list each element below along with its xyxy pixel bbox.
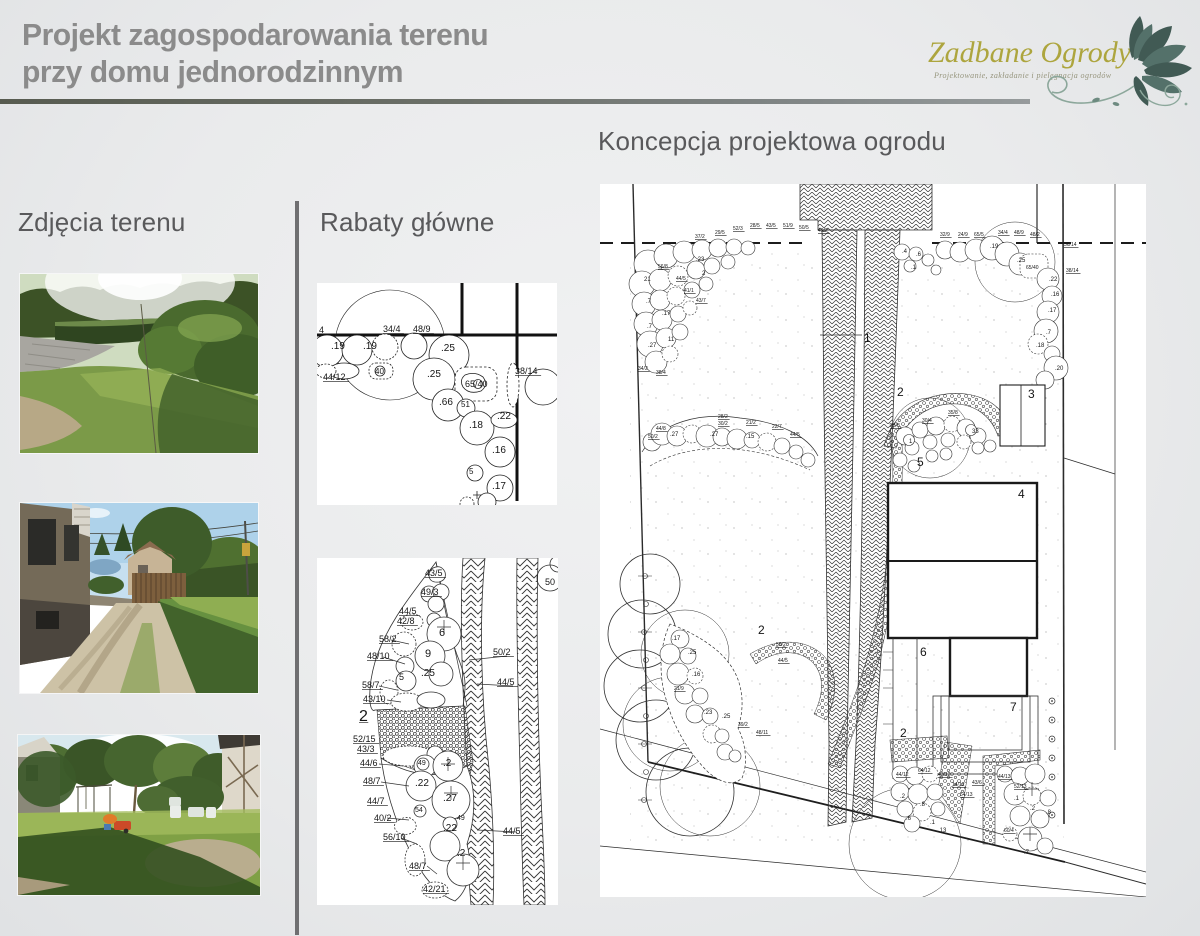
svg-text:.25: .25 [722, 714, 731, 720]
svg-text:.17: .17 [1048, 308, 1057, 314]
svg-text:35/8: 35/8 [948, 410, 958, 416]
svg-text:11: 11 [668, 337, 675, 343]
svg-text:.66: .66 [439, 397, 453, 408]
svg-text:.2: .2 [1030, 806, 1036, 812]
svg-text:.17: .17 [672, 636, 681, 642]
svg-text:60/4: 60/4 [1004, 828, 1014, 834]
svg-text:30/4: 30/4 [922, 418, 932, 424]
company-logo: Zadbane Ogrody Projektowanie, zakładanie… [920, 12, 1196, 114]
svg-text:48/9: 48/9 [413, 324, 431, 334]
svg-text:9: 9 [425, 648, 431, 660]
company-logo-graphic: Zadbane Ogrody Projektowanie, zakładanie… [920, 12, 1196, 114]
svg-text:.22: .22 [1049, 277, 1058, 283]
svg-text:.18: .18 [469, 420, 483, 431]
svg-text:43/10: 43/10 [363, 694, 386, 704]
svg-text:.25: .25 [1017, 258, 1026, 264]
svg-text:44/5: 44/5 [503, 826, 521, 836]
svg-text:32/9: 32/9 [940, 232, 950, 238]
svg-text:65/5: 65/5 [974, 232, 984, 238]
svg-text:.16: .16 [692, 672, 701, 678]
svg-text:49: 49 [418, 760, 426, 767]
svg-text:1: 1 [864, 331, 871, 345]
bed-drawing-2-plan: 43/549/344/542/8658/2948/1050/2.25544/55… [317, 558, 558, 905]
svg-text:52/15: 52/15 [353, 734, 376, 744]
svg-text:.1: .1 [911, 265, 917, 271]
section-heading-photos: Zdjęcia terenu [18, 207, 186, 238]
svg-text:6: 6 [920, 645, 927, 659]
page-title-line1: Projekt zagospodarowania terenu [22, 16, 720, 53]
svg-text:43/6: 43/6 [972, 780, 982, 786]
svg-text:6: 6 [439, 627, 445, 639]
svg-text:58/2: 58/2 [379, 634, 397, 644]
svg-text:38/4: 38/4 [656, 370, 666, 376]
svg-text:38/14: 38/14 [515, 366, 538, 376]
svg-text:.19: .19 [990, 244, 999, 250]
svg-text:.13: .13 [938, 828, 947, 834]
svg-text:2: 2 [897, 385, 904, 399]
svg-text:34/4: 34/4 [998, 230, 1008, 236]
svg-text:44/12: 44/12 [896, 772, 909, 778]
svg-text:56/10: 56/10 [383, 832, 406, 842]
svg-text:44/7: 44/7 [367, 796, 385, 806]
logo-tagline: Projektowanie, zakładanie i pielęgnacja … [933, 71, 1112, 80]
svg-text:37/2: 37/2 [695, 234, 705, 240]
site-photo-1-image [20, 274, 258, 453]
svg-text:56/8: 56/8 [658, 264, 668, 270]
svg-text:.23: .23 [704, 710, 713, 716]
svg-text:5: 5 [917, 455, 924, 469]
svg-text:4: 4 [1018, 487, 1025, 501]
svg-text:65/40: 65/40 [465, 379, 488, 389]
svg-text:48/9: 48/9 [1014, 230, 1024, 236]
svg-text:.20: .20 [1055, 366, 1064, 372]
svg-text:49/2: 49/2 [818, 228, 828, 234]
svg-text:.27: .27 [443, 793, 457, 804]
site-photo-3 [18, 735, 260, 895]
svg-text:5: 5 [469, 467, 474, 476]
svg-text:.17: .17 [492, 481, 506, 492]
svg-text:.1: .1 [1014, 796, 1020, 802]
svg-text:.7: .7 [647, 324, 653, 330]
svg-text:7: 7 [1010, 700, 1017, 714]
svg-text:34/4: 34/4 [383, 324, 401, 334]
svg-text:50: 50 [545, 577, 555, 587]
svg-text:.8: .8 [1046, 810, 1052, 816]
site-photo-2 [20, 503, 258, 693]
svg-text:42/21: 42/21 [423, 884, 446, 894]
svg-text:.25: .25 [688, 650, 697, 656]
svg-text:43/7: 43/7 [696, 298, 706, 304]
svg-text:65/40: 65/40 [1026, 265, 1039, 271]
svg-text:44/6: 44/6 [360, 758, 378, 768]
site-photo-1 [20, 274, 258, 453]
svg-text:.19: .19 [363, 341, 377, 352]
svg-text:.27: .27 [648, 343, 657, 349]
svg-text:54: 54 [415, 807, 423, 814]
svg-text:21/2: 21/2 [746, 420, 756, 426]
svg-text:4: 4 [319, 325, 324, 335]
svg-text:44/13: 44/13 [998, 774, 1011, 780]
svg-text:54/13: 54/13 [960, 792, 973, 798]
svg-text:.2: .2 [457, 848, 466, 859]
svg-text:42/8: 42/8 [397, 616, 415, 626]
svg-text:40/2: 40/2 [374, 813, 392, 823]
svg-text:64/12: 64/12 [918, 768, 931, 774]
svg-text:51/9: 51/9 [783, 223, 793, 229]
svg-text:28/5: 28/5 [750, 223, 760, 229]
svg-text:.16: .16 [1051, 292, 1060, 298]
svg-text:.25: .25 [441, 343, 455, 354]
svg-text:.2: .2 [443, 758, 452, 769]
svg-text:2: 2 [758, 623, 765, 637]
svg-text:.25: .25 [421, 668, 435, 679]
svg-text:.16: .16 [492, 445, 506, 456]
svg-text:44/8: 44/8 [656, 426, 666, 432]
svg-text:58/7: 58/7 [362, 680, 380, 690]
svg-text:52/3: 52/3 [733, 226, 743, 232]
svg-text:39/2: 39/2 [738, 722, 748, 728]
svg-text:.6: .6 [906, 816, 912, 822]
svg-text:48/11: 48/11 [756, 730, 768, 736]
svg-text:43/12: 43/12 [938, 772, 951, 778]
section-heading-plan: Koncepcja projektowa ogrodu [598, 126, 946, 157]
svg-text:30/2: 30/2 [718, 421, 728, 427]
bed-drawing-1-plan: 4.19.1934/448/9.2544/1240.2565/4038/14.6… [317, 283, 557, 505]
svg-text:.4: .4 [902, 249, 908, 255]
svg-text:14/12: 14/12 [952, 782, 965, 788]
svg-text:.27: .27 [670, 432, 679, 438]
presentation-slide: Projekt zagospodarowania terenu przy dom… [0, 0, 1200, 936]
svg-text:5: 5 [399, 672, 404, 682]
svg-text:.18: .18 [1036, 343, 1045, 349]
svg-text:.23: .23 [696, 257, 705, 263]
svg-text:34/2: 34/2 [638, 366, 648, 372]
svg-text:38/14: 38/14 [1066, 268, 1079, 274]
page-title: Projekt zagospodarowania terenu przy dom… [22, 16, 720, 90]
section-heading-beds: Rabaty główne [320, 207, 495, 238]
garden-concept-plan-drawing: 12345672237/229/552/328/543/551/950/549/… [600, 184, 1146, 897]
svg-text:49: 49 [457, 815, 465, 822]
site-photo-3-image [18, 735, 260, 895]
svg-text:.8: .8 [920, 802, 926, 808]
svg-text:.17: .17 [662, 311, 671, 317]
svg-text:40: 40 [375, 367, 384, 376]
svg-text:41/1: 41/1 [684, 288, 694, 294]
svg-text:29/5: 29/5 [715, 230, 725, 236]
logo-wordmark: Zadbane Ogrody [928, 36, 1132, 69]
svg-text:49/3: 49/3 [421, 587, 439, 597]
column-divider [295, 201, 299, 935]
svg-text:48/10: 48/10 [367, 651, 390, 661]
svg-text:2: 2 [900, 726, 907, 740]
svg-text:.7: .7 [646, 299, 652, 305]
svg-text:.7: .7 [1046, 330, 1052, 336]
site-photo-2-image [20, 503, 258, 693]
svg-text:24/9: 24/9 [958, 232, 968, 238]
svg-text:43/5: 43/5 [425, 568, 443, 578]
svg-text:44/12: 44/12 [323, 372, 346, 382]
svg-text:52/13: 52/13 [1014, 784, 1027, 790]
svg-text:44/5: 44/5 [399, 606, 417, 616]
svg-text:44/5: 44/5 [676, 276, 686, 282]
svg-text:.22: .22 [497, 411, 511, 422]
title-underline [0, 99, 1030, 104]
svg-text:.7: .7 [1024, 850, 1030, 856]
svg-text:3: 3 [1028, 387, 1035, 401]
svg-text:48/7: 48/7 [363, 776, 381, 786]
page-title-line2: przy domu jednorodzinnym [22, 53, 720, 90]
svg-text:44/5: 44/5 [778, 658, 788, 664]
svg-text:43/3: 43/3 [357, 744, 375, 754]
svg-text:28/8: 28/8 [890, 423, 900, 429]
svg-text:.22: .22 [415, 778, 429, 789]
garden-concept-plan: 12345672237/229/552/328/543/551/950/549/… [600, 184, 1146, 897]
svg-text:50/2: 50/2 [776, 642, 786, 648]
svg-text:43/5: 43/5 [766, 223, 776, 229]
svg-text:44/5: 44/5 [790, 432, 800, 438]
svg-text:.22: .22 [443, 823, 457, 834]
bed-drawing-1: 4.19.1934/448/9.2544/1240.2565/4038/14.6… [317, 283, 557, 505]
bed-drawing-2: 43/549/344/542/8658/2948/1050/2.25544/55… [317, 558, 558, 905]
svg-text:.25: .25 [427, 369, 441, 380]
svg-text:50/2: 50/2 [493, 647, 511, 657]
svg-text:.1: .1 [930, 820, 936, 826]
svg-text:44/5: 44/5 [497, 677, 515, 687]
svg-text:21: 21 [644, 277, 651, 283]
svg-text:36/14: 36/14 [1064, 242, 1077, 248]
svg-text:48/2: 48/2 [1030, 232, 1040, 238]
svg-text:.2: .2 [900, 794, 906, 800]
svg-text:22/7: 22/7 [772, 424, 782, 430]
svg-text:50/2: 50/2 [648, 434, 658, 440]
svg-text:50/5: 50/5 [799, 225, 809, 231]
svg-text:21/9: 21/9 [674, 686, 684, 692]
svg-text:33: 33 [972, 429, 979, 435]
svg-text:.15: .15 [746, 434, 755, 440]
svg-text:.27: .27 [710, 432, 719, 438]
svg-text:51: 51 [461, 400, 470, 409]
svg-text:28/2: 28/2 [718, 414, 728, 420]
svg-text:48/7: 48/7 [409, 861, 427, 871]
svg-text:.6: .6 [916, 252, 922, 258]
svg-text:.19: .19 [331, 341, 345, 352]
